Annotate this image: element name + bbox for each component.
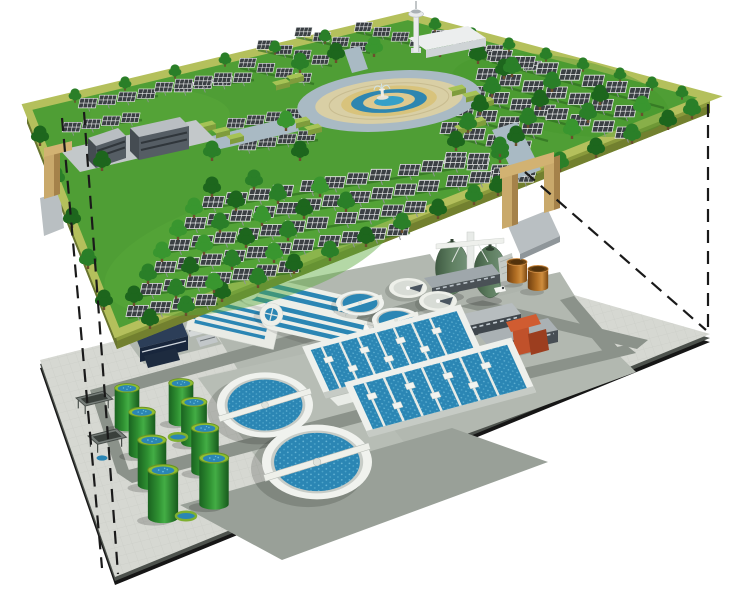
small-pool [97,455,108,460]
entrance-arch-right [500,152,560,260]
ground-tank [176,512,196,520]
cutaway-scene [0,0,740,589]
cutaway-illustration [0,0,740,589]
ground-tank [169,433,187,441]
